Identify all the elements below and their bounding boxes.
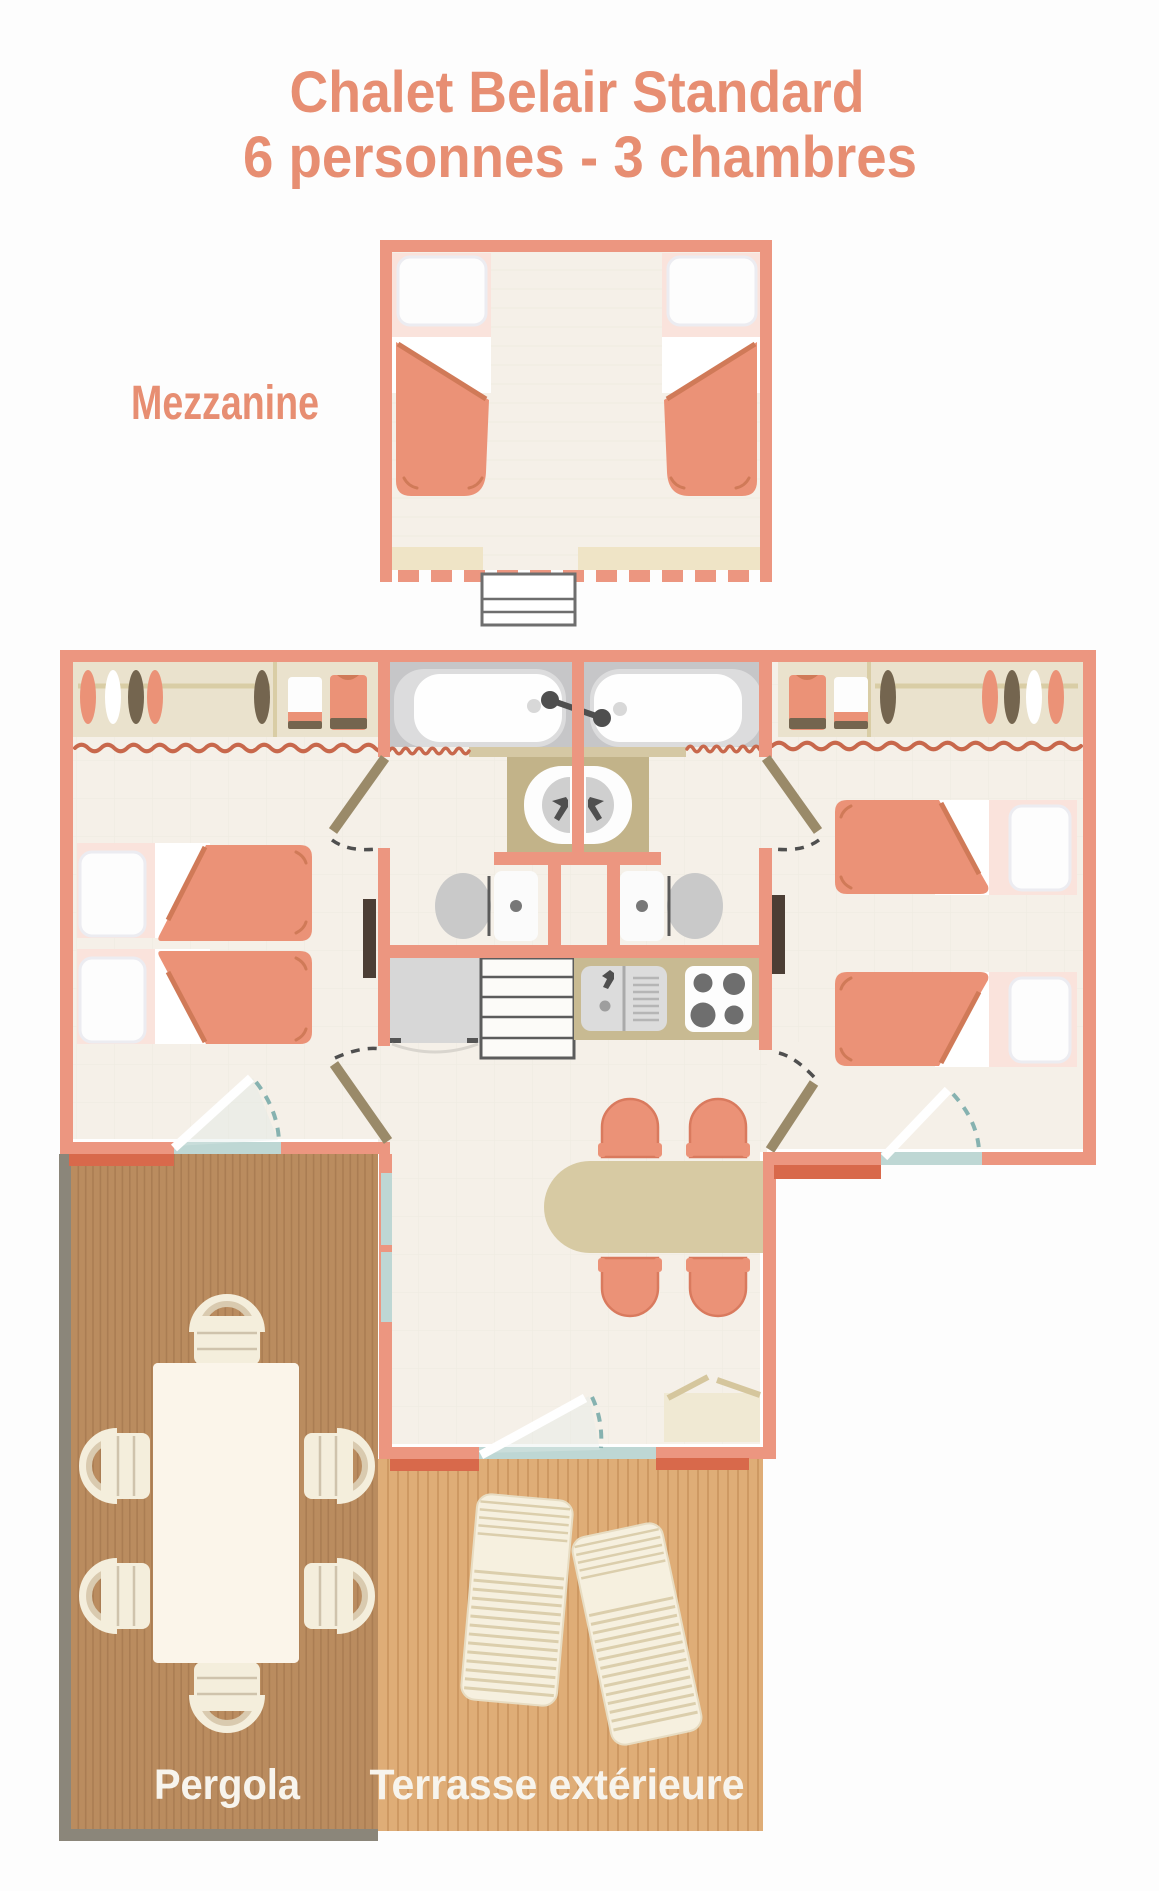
svg-text:6 personnes - 3 chambres: 6 personnes - 3 chambres: [243, 125, 917, 190]
svg-text:Chalet Belair Standard: Chalet Belair Standard: [290, 60, 865, 125]
svg-text:Mezzanine: Mezzanine: [131, 377, 319, 430]
svg-text:Pergola: Pergola: [154, 1761, 301, 1809]
svg-text:Terrasse extérieure: Terrasse extérieure: [370, 1761, 745, 1809]
